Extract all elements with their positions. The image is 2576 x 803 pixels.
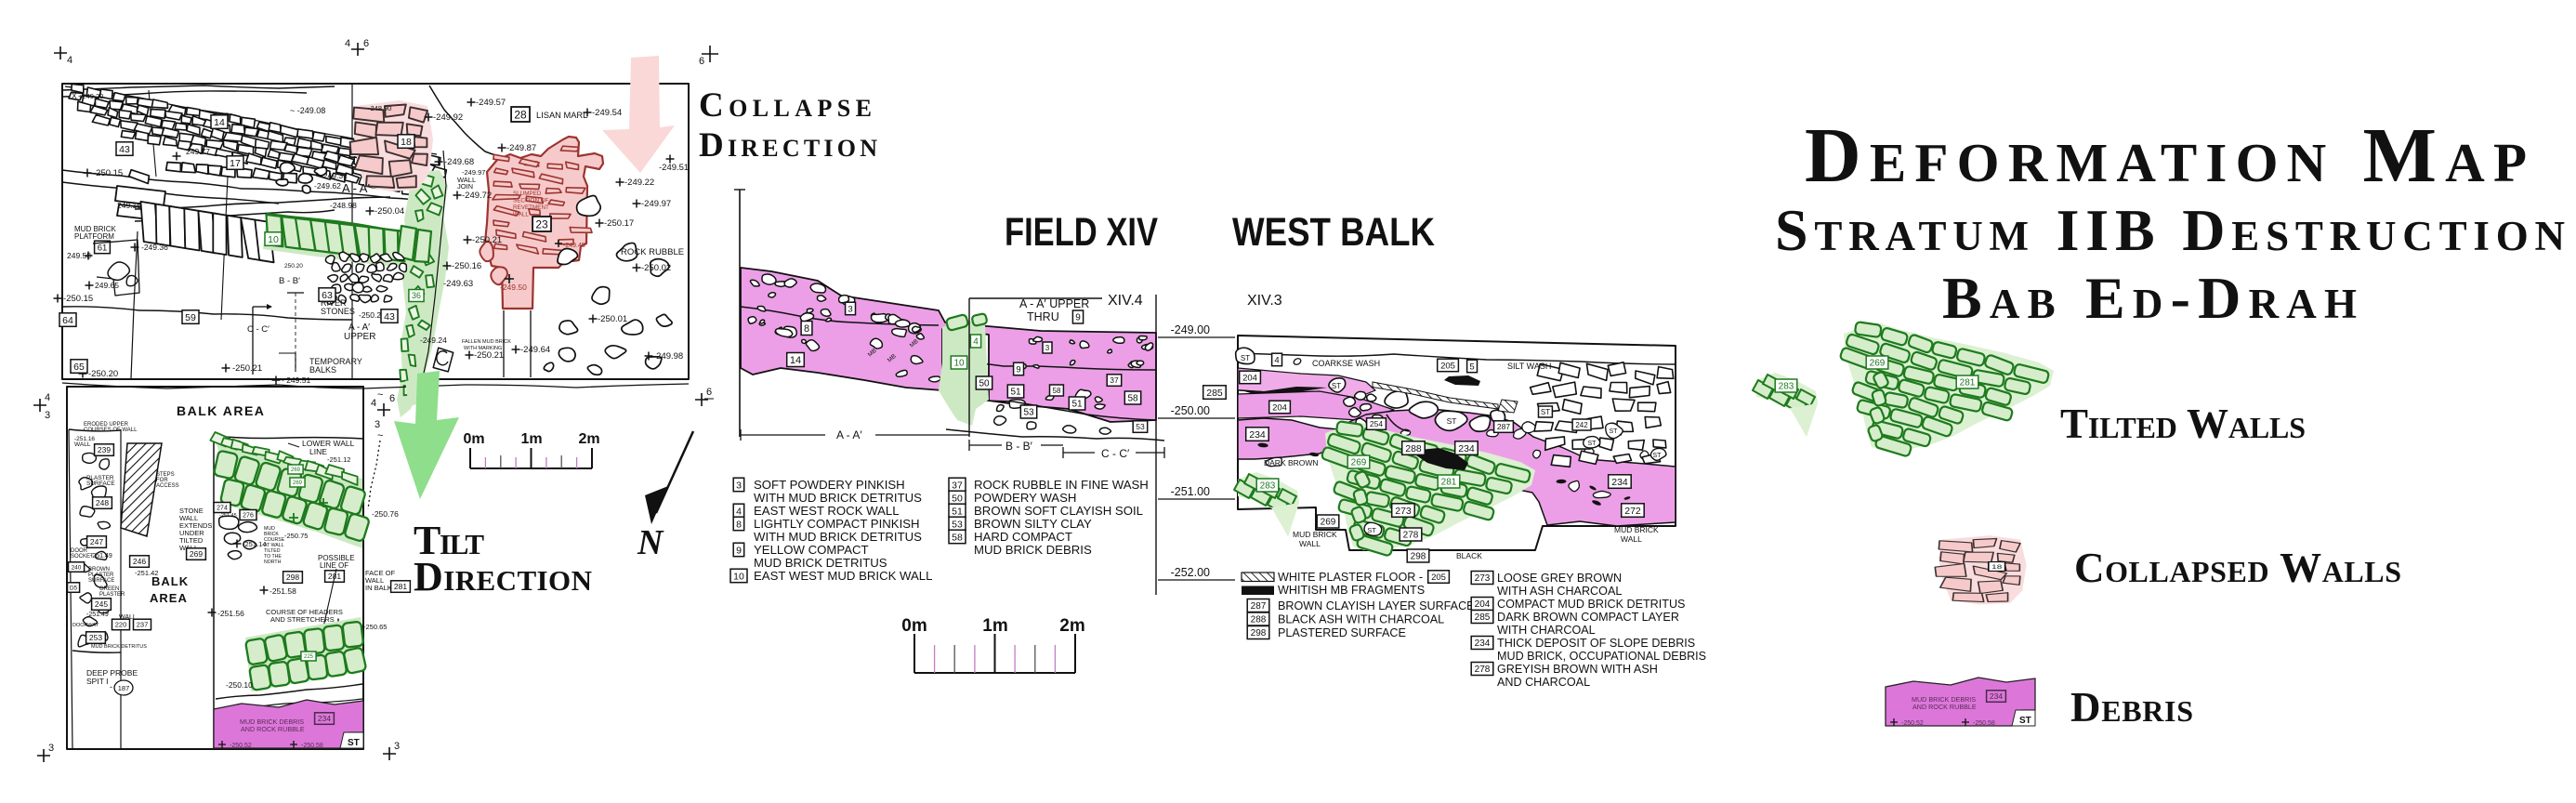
svg-text:Collapsed Walls: Collapsed Walls <box>2074 545 2401 591</box>
svg-text:53: 53 <box>1023 408 1034 418</box>
svg-text:269: 269 <box>190 549 203 559</box>
svg-text:287: 287 <box>1251 601 1267 612</box>
svg-text:6: 6 <box>389 393 395 404</box>
svg-text:3: 3 <box>48 743 54 754</box>
svg-text:LISAN MARL: LISAN MARL <box>536 111 587 120</box>
svg-text:WALL: WALL <box>513 212 529 218</box>
svg-text:65: 65 <box>73 362 85 373</box>
svg-text:WITH MUD BRICK DETRITUS: WITH MUD BRICK DETRITUS <box>754 491 922 505</box>
svg-text:225: 225 <box>304 654 314 660</box>
svg-text:MUD BRICK, OCCUPATIONAL DEBRIS: MUD BRICK, OCCUPATIONAL DEBRIS <box>1497 650 1706 663</box>
svg-text:-251.58: -251.58 <box>269 586 296 596</box>
svg-text:8: 8 <box>736 519 742 530</box>
svg-text:-250.65: -250.65 <box>363 623 387 631</box>
svg-text:61: 61 <box>98 243 108 253</box>
svg-text:3: 3 <box>45 410 50 421</box>
svg-text:DOORWAY: DOORWAY <box>72 623 99 628</box>
svg-text:XIV.3: XIV.3 <box>1247 293 1282 309</box>
svg-text:-249.64: -249.64 <box>520 345 550 355</box>
svg-text:COURSES OF WALL: COURSES OF WALL <box>84 428 138 433</box>
svg-text:- 249.51: - 249.51 <box>282 375 310 385</box>
svg-text:-251.12: -251.12 <box>327 455 350 464</box>
svg-text:8: 8 <box>804 323 809 335</box>
svg-text:BALK AREA: BALK AREA <box>177 403 265 418</box>
svg-text:AND CHARCOAL: AND CHARCOAL <box>1497 676 1590 689</box>
svg-text:51: 51 <box>1010 388 1021 398</box>
svg-text:287: 287 <box>1497 422 1510 431</box>
svg-text:WALL: WALL <box>1621 534 1642 544</box>
svg-text:THICK DEPOSIT OF SLOPE DEBRIS: THICK DEPOSIT OF SLOPE DEBRIS <box>1497 637 1695 650</box>
svg-text:-249.98: -249.98 <box>653 351 683 362</box>
svg-text:HARD COMPACT: HARD COMPACT <box>974 530 1072 544</box>
svg-text:-250.15: -250.15 <box>93 168 123 178</box>
svg-text:ST: ST <box>1588 441 1597 447</box>
svg-text:JOIN: JOIN <box>457 182 473 191</box>
svg-text:59: 59 <box>185 312 196 323</box>
svg-text:14: 14 <box>790 355 801 366</box>
svg-text:-250.20: -250.20 <box>88 369 118 379</box>
svg-text:+249.20: +249.20 <box>78 92 103 100</box>
svg-text:58: 58 <box>1127 394 1138 404</box>
svg-text:Stratum IIB Destruction: Stratum IIB Destruction <box>1775 197 2565 263</box>
svg-text:PLASTERED SURFACE: PLASTERED SURFACE <box>1278 626 1406 639</box>
svg-text:WEST BALK: WEST BALK <box>1232 210 1435 255</box>
svg-text:37: 37 <box>952 480 963 491</box>
svg-text:-252.00: -252.00 <box>1171 566 1210 579</box>
svg-text:273: 273 <box>1395 506 1412 517</box>
svg-text:281: 281 <box>1441 478 1457 488</box>
svg-text:4: 4 <box>973 337 979 348</box>
svg-text:-251.00: -251.00 <box>1171 485 1210 498</box>
svg-text:3: 3 <box>1045 344 1050 352</box>
svg-text:242: 242 <box>1575 421 1588 429</box>
svg-text:-250.02: -250.02 <box>641 263 671 273</box>
svg-text:274: 274 <box>217 506 228 512</box>
svg-text:51: 51 <box>1071 400 1083 410</box>
svg-text:AREA: AREA <box>150 591 188 605</box>
svg-text:50: 50 <box>952 493 963 504</box>
svg-text:BLACK: BLACK <box>1456 551 1482 560</box>
svg-text:YELLOW COMPACT: YELLOW COMPACT <box>754 543 869 557</box>
svg-text:DARK BROWN: DARK BROWN <box>1264 458 1319 467</box>
svg-text:4: 4 <box>1274 355 1279 365</box>
svg-text:WALL: WALL <box>1299 539 1321 548</box>
svg-text:UPPER: UPPER <box>344 332 375 342</box>
svg-text:AND STRETCHERS: AND STRETCHERS <box>270 615 335 624</box>
svg-text:ST: ST <box>1610 428 1619 435</box>
svg-text:-250.17: -250.17 <box>604 218 634 229</box>
svg-text:-251.45: -251.45 <box>219 513 237 519</box>
svg-text:4: 4 <box>736 506 742 517</box>
svg-text:249.77: 249.77 <box>186 147 210 156</box>
svg-text:278: 278 <box>1475 665 1491 675</box>
svg-text:-249.36: -249.36 <box>141 243 168 252</box>
svg-text:253: 253 <box>89 633 102 642</box>
svg-text:-249.97: -249.97 <box>641 199 671 209</box>
svg-text:BLACK ASH WITH CHARCOAL: BLACK ASH WITH CHARCOAL <box>1278 613 1444 626</box>
svg-text:36: 36 <box>412 291 421 300</box>
svg-text:278: 278 <box>1403 531 1419 541</box>
svg-text:EAST WEST MUD BRICK WALL: EAST WEST MUD BRICK WALL <box>754 569 932 583</box>
svg-text:COARKSE WASH: COARKSE WASH <box>1312 359 1380 368</box>
svg-text:MUD BRICK: MUD BRICK <box>1614 525 1659 534</box>
svg-text:WALL: WALL <box>74 441 91 448</box>
svg-text:-248.98: -248.98 <box>330 201 357 210</box>
svg-text:64: 64 <box>62 315 73 326</box>
svg-text:SILT WASH: SILT WASH <box>1507 362 1551 371</box>
svg-text:LOOSE GREY BROWN: LOOSE GREY BROWN <box>1497 572 1622 585</box>
svg-text:LINE OF: LINE OF <box>320 561 348 570</box>
svg-text:SURFACE: SURFACE <box>86 480 115 487</box>
svg-text:9: 9 <box>736 545 742 556</box>
svg-text:POWDERY WASH: POWDERY WASH <box>974 491 1076 505</box>
svg-text:THRU: THRU <box>1027 310 1059 323</box>
svg-text:GREYISH BROWN WITH ASH: GREYISH BROWN WITH ASH <box>1497 663 1658 676</box>
svg-text:6: 6 <box>706 387 712 398</box>
svg-text:ROCK RUBBLE: ROCK RUBBLE <box>621 247 684 257</box>
svg-text:Direction: Direction <box>414 554 592 599</box>
svg-text:-249.57: -249.57 <box>476 98 506 108</box>
svg-text:28: 28 <box>514 108 527 121</box>
svg-text:BALK: BALK <box>151 574 189 588</box>
svg-text:237: 237 <box>137 621 149 629</box>
svg-text:249.15: 249.15 <box>117 201 141 210</box>
svg-text:281: 281 <box>394 582 407 591</box>
svg-text:WITH MUD BRICK DETRITUS: WITH MUD BRICK DETRITUS <box>754 530 922 544</box>
svg-text:246: 246 <box>133 557 146 566</box>
svg-text:LIGHTLY COMPACT PINKISH: LIGHTLY COMPACT PINKISH <box>754 517 920 531</box>
svg-text:9: 9 <box>1075 313 1081 323</box>
svg-text:204: 204 <box>1272 402 1287 413</box>
svg-text:Debris: Debris <box>2070 684 2193 731</box>
svg-text:MUD BRICK: MUD BRICK <box>1293 530 1337 539</box>
svg-text:17: 17 <box>230 158 241 169</box>
svg-text:249.65: 249.65 <box>95 281 119 290</box>
svg-text:-251.56: -251.56 <box>217 609 244 618</box>
svg-text:58: 58 <box>952 532 963 543</box>
svg-text:4: 4 <box>371 398 376 409</box>
svg-text:4: 4 <box>45 392 50 403</box>
svg-text:269: 269 <box>1321 518 1336 528</box>
svg-text:204: 204 <box>1475 599 1491 610</box>
svg-text:BALKS: BALKS <box>309 365 336 375</box>
svg-text:ST: ST <box>1541 408 1550 416</box>
svg-text:LINE: LINE <box>309 447 327 456</box>
svg-text:-249.22: -249.22 <box>624 178 654 188</box>
svg-text:-249.31: -249.31 <box>321 171 348 180</box>
svg-text:NORTH: NORTH <box>264 559 282 565</box>
svg-text:3: 3 <box>848 304 852 314</box>
svg-text:-250.10: -250.10 <box>226 680 253 690</box>
svg-text:B - B′: B - B′ <box>1005 440 1033 453</box>
svg-text:63: 63 <box>322 290 333 301</box>
svg-text:MUD BRICK DETRITUS: MUD BRICK DETRITUS <box>754 556 887 570</box>
svg-text:283: 283 <box>1260 481 1276 492</box>
svg-text:ST: ST <box>1241 354 1250 362</box>
svg-text:1m: 1m <box>982 616 1007 636</box>
svg-text:3: 3 <box>375 419 380 430</box>
svg-text:-250.04: -250.04 <box>375 206 404 217</box>
svg-text:37: 37 <box>1110 375 1119 385</box>
svg-text:AND ROCK RUBBLE: AND ROCK RUBBLE <box>241 725 305 733</box>
svg-text:273: 273 <box>1475 573 1491 584</box>
svg-text:205: 205 <box>1431 573 1446 583</box>
svg-text:276: 276 <box>243 513 254 520</box>
svg-text:269: 269 <box>291 467 301 473</box>
svg-text:COMPACT MUD BRICK DETRITUS: COMPACT MUD BRICK DETRITUS <box>1497 598 1685 611</box>
svg-text:ST: ST <box>1332 382 1341 390</box>
svg-text:10: 10 <box>268 234 279 245</box>
svg-text:239: 239 <box>98 445 111 454</box>
svg-text:-249.24: -249.24 <box>420 336 447 345</box>
svg-text:SECTION OF: SECTION OF <box>513 198 549 204</box>
svg-text:ST: ST <box>1653 453 1663 459</box>
svg-text:DARK BROWN COMPACT LAYER: DARK BROWN COMPACT LAYER <box>1497 611 1679 624</box>
svg-text:-249.54: -249.54 <box>592 108 622 118</box>
svg-text:WHITISH MB FRAGMENTS: WHITISH MB FRAGMENTS <box>1278 584 1425 597</box>
svg-text:A - A′: A - A′ <box>342 181 370 195</box>
svg-text:9: 9 <box>1016 364 1020 375</box>
svg-text:BROWN SILTY CLAY: BROWN SILTY CLAY <box>974 517 1092 531</box>
svg-text:ST: ST <box>1367 526 1376 534</box>
svg-text:4: 4 <box>67 55 72 66</box>
svg-text:-249.00: -249.00 <box>1171 323 1210 336</box>
svg-text:2m: 2m <box>1059 616 1084 636</box>
svg-text:2m: 2m <box>578 431 599 447</box>
svg-text:-248.90: -248.90 <box>368 104 391 112</box>
svg-text:-249.51: -249.51 <box>659 163 689 173</box>
svg-text:5: 5 <box>1469 362 1474 372</box>
svg-text:269: 269 <box>293 480 303 486</box>
svg-text:298: 298 <box>286 573 299 582</box>
svg-text:4: 4 <box>345 38 350 49</box>
svg-text:~: ~ <box>377 389 383 401</box>
svg-text:0m: 0m <box>463 431 484 447</box>
svg-text:-250.58: -250.58 <box>301 743 323 749</box>
svg-text:240: 240 <box>72 564 82 571</box>
svg-text:3: 3 <box>736 480 742 491</box>
svg-text:298: 298 <box>1411 552 1426 562</box>
svg-text:-250.21: -250.21 <box>232 363 262 374</box>
svg-text:SLUMPED: SLUMPED <box>513 191 542 197</box>
svg-text:247: 247 <box>90 537 103 546</box>
svg-text:B - B′: B - B′ <box>279 276 300 286</box>
svg-text:285: 285 <box>1475 612 1491 623</box>
svg-text:298: 298 <box>1251 628 1267 638</box>
svg-text:-251.14: -251.14 <box>243 540 266 548</box>
svg-text:-250.21: -250.21 <box>474 350 504 361</box>
svg-text:C - C′: C - C′ <box>1101 447 1130 460</box>
svg-text:XIV.4: XIV.4 <box>1108 293 1143 309</box>
svg-text:58: 58 <box>1053 387 1061 395</box>
svg-text:-249.87: -249.87 <box>506 143 536 153</box>
svg-text:254: 254 <box>1370 419 1383 428</box>
svg-text:~ -249.08: ~ -249.08 <box>290 106 325 115</box>
svg-text:-250.21: -250.21 <box>472 235 502 245</box>
svg-text:-249.63: -249.63 <box>443 279 473 289</box>
svg-text:-249.50: -249.50 <box>500 283 527 292</box>
svg-text:ST: ST <box>348 738 360 748</box>
svg-text:234: 234 <box>1475 638 1491 649</box>
svg-text:A - A′: A - A′ <box>836 428 862 441</box>
svg-text:288: 288 <box>1405 443 1422 454</box>
svg-text:-250.16: -250.16 <box>452 261 481 271</box>
svg-text:234: 234 <box>1458 443 1475 454</box>
svg-text:-251.49: -251.49 <box>90 553 112 559</box>
svg-text:288: 288 <box>1251 615 1267 625</box>
svg-text:51: 51 <box>952 506 963 517</box>
svg-text:-250.00: -250.00 <box>1171 404 1210 417</box>
svg-text:A - A′ UPPER: A - A′ UPPER <box>1019 297 1089 310</box>
svg-text:ACCESS: ACCESS <box>156 483 179 489</box>
svg-text:23: 23 <box>535 217 548 230</box>
svg-text:Bab Ed-Drah: Bab Ed-Drah <box>1942 265 2357 331</box>
svg-text:WITH ASH CHARCOAL: WITH ASH CHARCOAL <box>1497 585 1622 598</box>
svg-text:STONES: STONES <box>321 307 355 316</box>
svg-text:205: 205 <box>1440 361 1455 371</box>
svg-text:10: 10 <box>953 359 965 369</box>
svg-text:PLASTER: PLASTER <box>99 592 125 598</box>
svg-text:X: X <box>72 91 77 100</box>
svg-text:272: 272 <box>1624 506 1641 517</box>
svg-text:204: 204 <box>1242 373 1257 383</box>
svg-text:-250.52: -250.52 <box>230 743 252 749</box>
svg-text:248: 248 <box>96 498 109 507</box>
svg-text:18: 18 <box>1991 563 2002 571</box>
svg-text:18: 18 <box>401 137 412 148</box>
svg-text:43: 43 <box>119 144 130 155</box>
svg-text:PLATFORM: PLATFORM <box>74 232 114 241</box>
svg-text:ST: ST <box>1447 416 1457 426</box>
svg-text:-249.68: -249.68 <box>444 157 474 167</box>
svg-text:10: 10 <box>733 571 744 582</box>
svg-text:53: 53 <box>952 519 963 530</box>
svg-text:-250.76: -250.76 <box>372 509 399 519</box>
svg-text:-: - <box>110 682 112 691</box>
svg-text:50: 50 <box>979 379 990 389</box>
svg-text:BROWN CLAYISH LAYER SURFACE: BROWN CLAYISH LAYER SURFACE <box>1278 599 1475 612</box>
svg-text:234: 234 <box>1249 429 1266 441</box>
svg-text:C - C′: C - C′ <box>247 324 269 335</box>
svg-text:234: 234 <box>1611 477 1628 488</box>
svg-text:-250.75: -250.75 <box>284 532 308 540</box>
svg-text:269: 269 <box>1351 458 1367 468</box>
svg-text:SURFACE: SURFACE <box>88 578 114 584</box>
svg-text:285: 285 <box>1206 388 1223 399</box>
svg-text:WHITE PLASTER FLOOR -: WHITE PLASTER FLOOR - <box>1278 571 1423 584</box>
svg-text:6: 6 <box>699 56 704 67</box>
svg-text:IN BALK: IN BALK <box>365 584 392 592</box>
svg-text:REVETMENT: REVETMENT <box>513 204 549 211</box>
svg-text:SOFT POWDERY PINKISH: SOFT POWDERY PINKISH <box>754 478 905 492</box>
svg-text:-250.01: -250.01 <box>598 314 627 324</box>
svg-text:ROCK RUBBLE IN FINE WASH: ROCK RUBBLE IN FINE WASH <box>974 478 1149 492</box>
svg-text:14: 14 <box>214 117 225 128</box>
svg-text:BROWN SOFT CLAYISH SOIL: BROWN SOFT CLAYISH SOIL <box>974 504 1143 518</box>
svg-text:EAST WEST ROCK WALL: EAST WEST ROCK WALL <box>754 504 900 518</box>
svg-text:-249.72: -249.72 <box>462 191 492 201</box>
svg-text:0m: 0m <box>901 616 927 636</box>
svg-text:43: 43 <box>384 311 395 323</box>
svg-text:D5: D5 <box>70 585 78 591</box>
svg-text:3: 3 <box>394 741 400 752</box>
svg-text:FALLEN MUD BRICK: FALLEN MUD BRICK <box>462 339 511 345</box>
svg-text:245: 245 <box>95 599 108 609</box>
svg-text:-249.92: -249.92 <box>433 112 463 123</box>
svg-text:53: 53 <box>1136 422 1145 431</box>
svg-text:220: 220 <box>115 621 127 629</box>
svg-text:WITH CHARCOAL: WITH CHARCOAL <box>1497 624 1596 637</box>
svg-text:MUD BRICK DEBRIS: MUD BRICK DEBRIS <box>974 543 1092 557</box>
svg-text:234: 234 <box>318 714 331 723</box>
svg-text:-249.62: -249.62 <box>314 181 341 191</box>
svg-text:6: 6 <box>363 38 369 49</box>
svg-text:1m: 1m <box>520 431 542 447</box>
svg-text:N: N <box>637 523 664 562</box>
svg-text:MUD BRICK DETRITUS: MUD BRICK DETRITUS <box>91 644 147 650</box>
svg-text:SPIT I: SPIT I <box>86 677 108 686</box>
svg-text:-250.15: -250.15 <box>63 294 93 304</box>
svg-text:Tilted Walls: Tilted Walls <box>2060 401 2306 447</box>
svg-text:FIELD XIV: FIELD XIV <box>1005 210 1158 255</box>
svg-text:-251.49: -251.49 <box>86 612 109 618</box>
svg-text:187: 187 <box>118 684 130 692</box>
svg-text:~: ~ <box>377 430 383 441</box>
svg-text:250.20: 250.20 <box>284 263 303 270</box>
